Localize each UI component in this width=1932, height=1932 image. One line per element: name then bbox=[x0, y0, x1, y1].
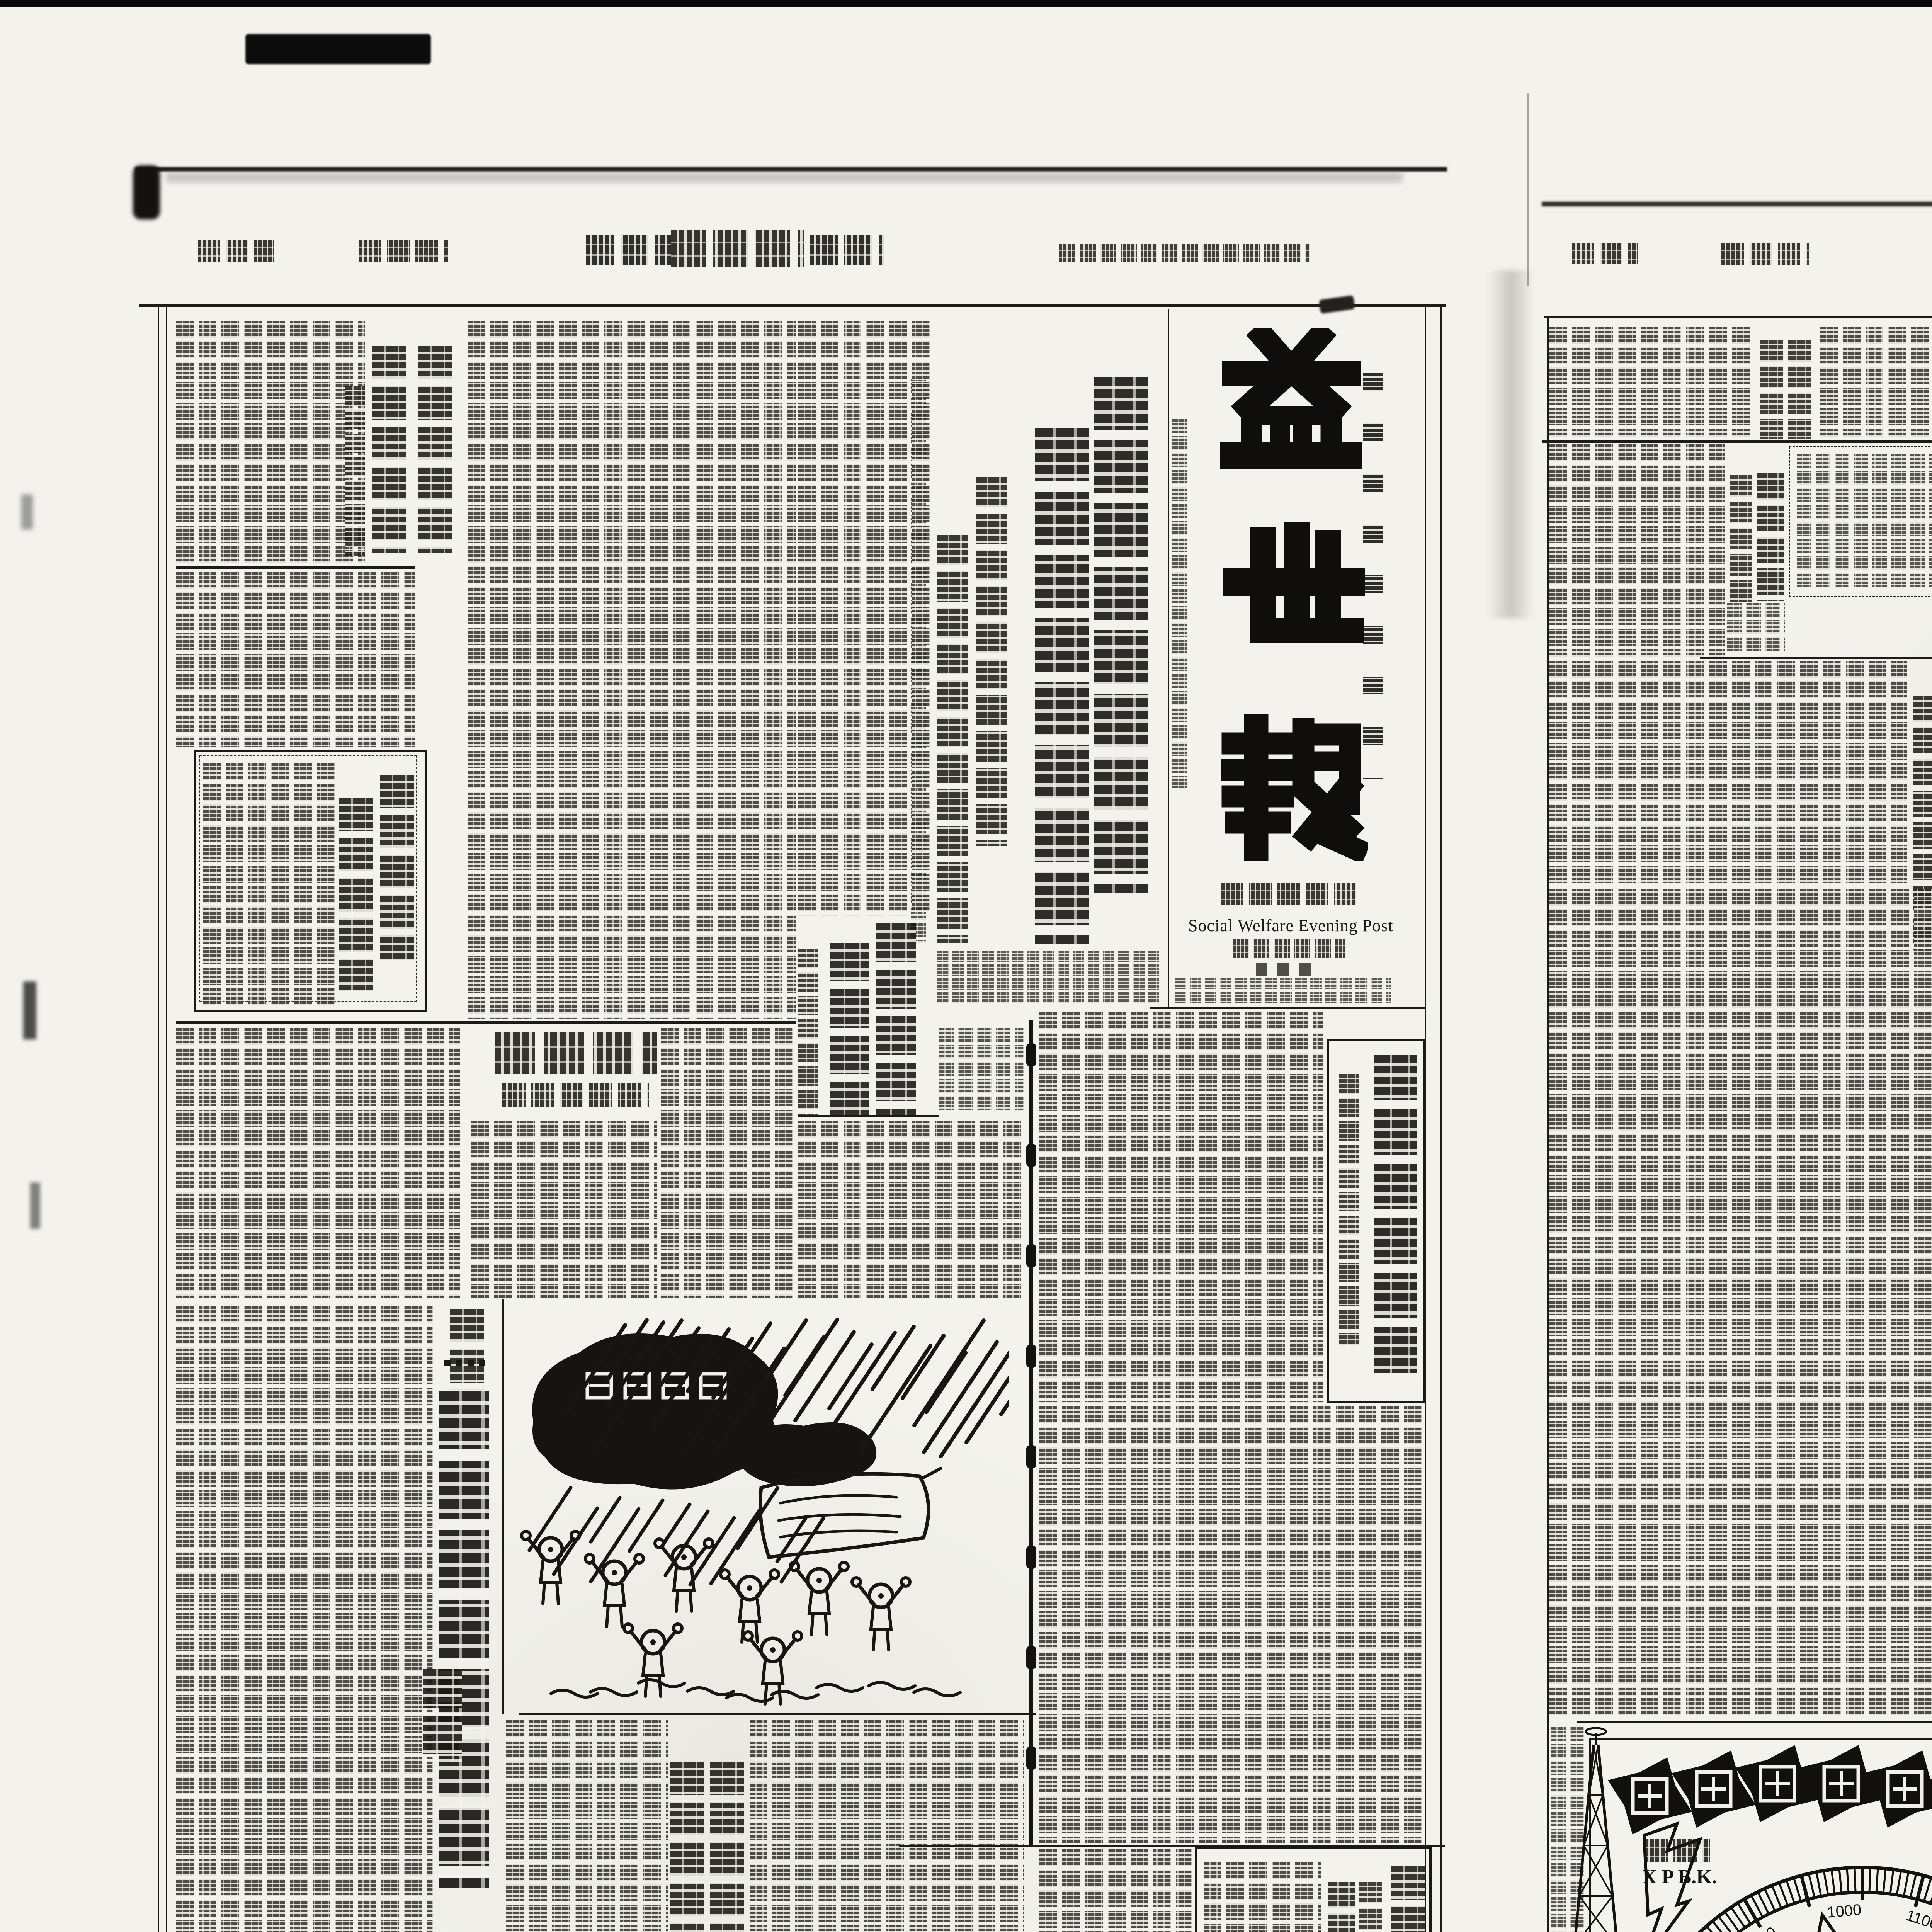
svg-text:1000: 1000 bbox=[1827, 1901, 1862, 1921]
svg-text:900: 900 bbox=[1748, 1923, 1779, 1932]
svg-text:1100: 1100 bbox=[1904, 1906, 1932, 1932]
